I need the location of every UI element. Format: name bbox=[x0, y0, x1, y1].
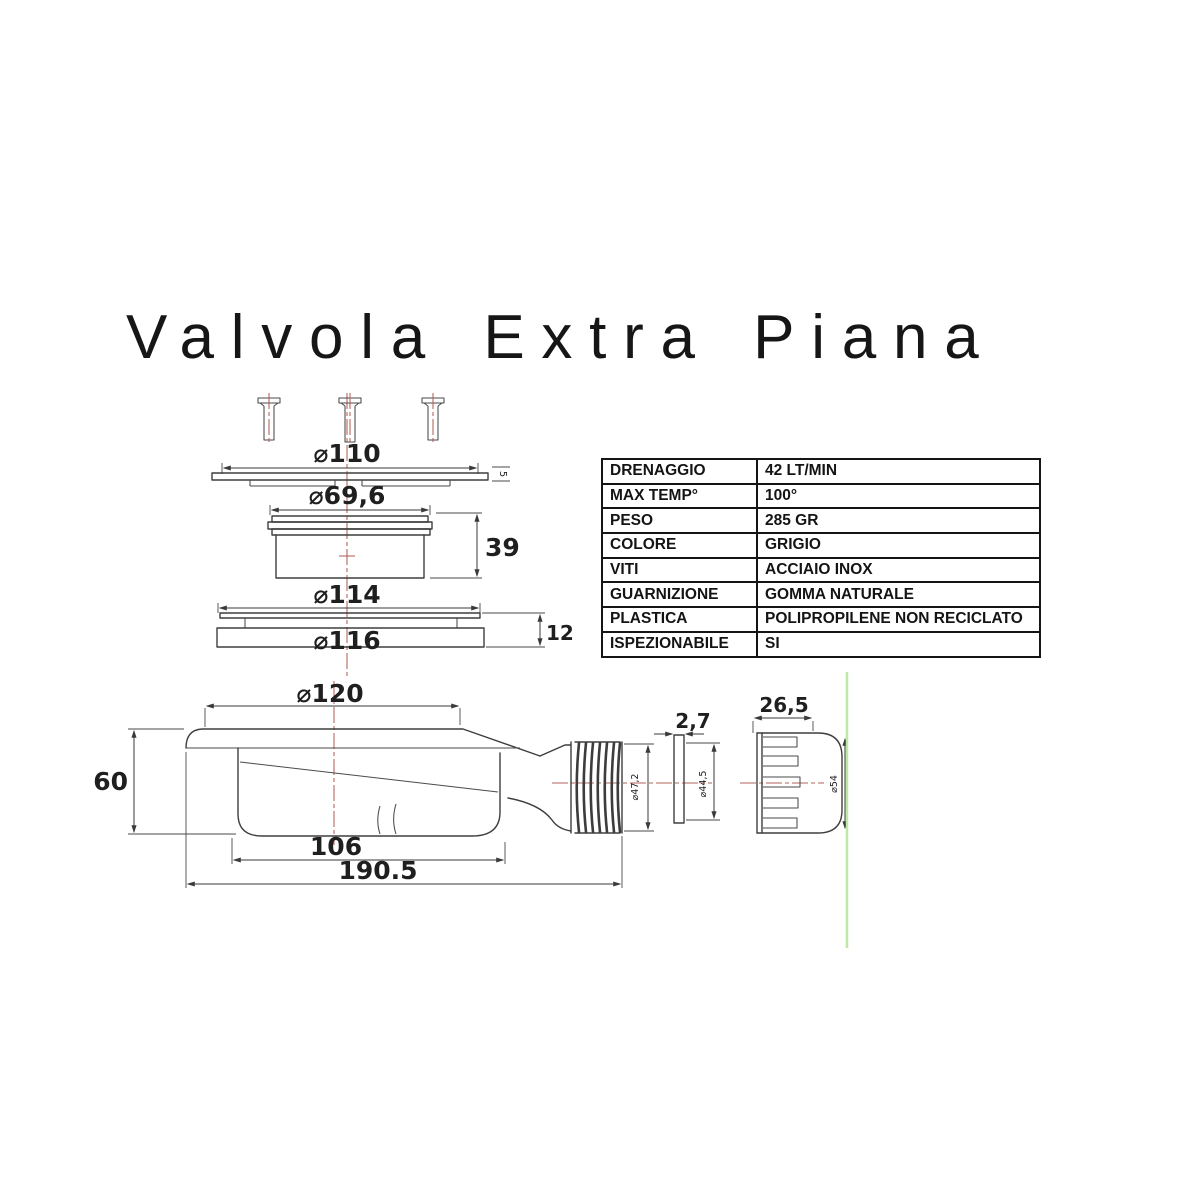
spec-row: GUARNIZIONE GOMMA NATURALE bbox=[602, 582, 1040, 607]
dim-flange-bottom-label: ⌀116 bbox=[313, 626, 380, 655]
dim-flange-height-label: 12 bbox=[546, 621, 574, 645]
spec-label-cell: VITI bbox=[602, 558, 757, 583]
page: Valvola Extra Piana bbox=[0, 0, 1200, 1200]
spec-value-cell: 42 LT/MIN bbox=[757, 459, 1040, 484]
spec-table: DRENAGGIO 42 LT/MIN MAX TEMP° 100° PESO … bbox=[601, 458, 1041, 658]
dim-insert-diameter-label: ⌀69,6 bbox=[309, 481, 386, 510]
dim-flange-height-ext bbox=[482, 613, 545, 647]
dim-body-height-ext bbox=[128, 729, 236, 834]
dim-cover-diameter-label: ⌀110 bbox=[313, 439, 380, 468]
spec-label-cell: COLORE bbox=[602, 533, 757, 558]
spec-row: PLASTICA POLIPROPILENE NON RECICLATO bbox=[602, 607, 1040, 632]
spec-label-cell: ISPEZIONABILE bbox=[602, 632, 757, 657]
dim-cover-thickness-label: 5 bbox=[497, 471, 508, 477]
spec-label-cell: GUARNIZIONE bbox=[602, 582, 757, 607]
dim-total-length-label: 190.5 bbox=[338, 856, 417, 885]
spec-label-cell: PESO bbox=[602, 508, 757, 533]
spec-row: COLORE GRIGIO bbox=[602, 533, 1040, 558]
spec-label-cell: DRENAGGIO bbox=[602, 459, 757, 484]
valve-insert bbox=[268, 516, 432, 578]
gasket bbox=[674, 735, 684, 823]
spec-label-cell: PLASTICA bbox=[602, 607, 757, 632]
spec-value-cell: 285 GR bbox=[757, 508, 1040, 533]
spec-value-cell: GRIGIO bbox=[757, 533, 1040, 558]
spec-value-cell: ACCIAIO INOX bbox=[757, 558, 1040, 583]
dim-insert-height-label: 39 bbox=[485, 533, 520, 562]
spec-value-cell: 100° bbox=[757, 484, 1040, 509]
dim-body-diameter-label: ⌀120 bbox=[296, 679, 363, 708]
spec-value-cell: SI bbox=[757, 632, 1040, 657]
spec-row: DRENAGGIO 42 LT/MIN bbox=[602, 459, 1040, 484]
dim-nut-length-label: 26,5 bbox=[759, 693, 808, 717]
dim-nut-length-ext bbox=[753, 721, 813, 733]
dim-gasket-diameter-label: ⌀44,5 bbox=[698, 771, 709, 798]
spec-label-cell: MAX TEMP° bbox=[602, 484, 757, 509]
dim-gasket-thickness-label: 2,7 bbox=[675, 709, 710, 733]
spec-row: VITI ACCIAIO INOX bbox=[602, 558, 1040, 583]
dim-insert-height-ext bbox=[430, 513, 482, 578]
spec-row: PESO 285 GR bbox=[602, 508, 1040, 533]
spec-value-cell: POLIPROPILENE NON RECICLATO bbox=[757, 607, 1040, 632]
dim-flange-top-label: ⌀114 bbox=[313, 580, 380, 609]
dim-nut-diameter-label: ⌀54 bbox=[829, 775, 840, 793]
screw-left bbox=[258, 393, 280, 445]
dim-body-height-label: 60 bbox=[93, 767, 128, 796]
exploded-view-drawing: ⌀110 5 ⌀69,6 39 bbox=[212, 393, 574, 676]
dim-outlet-diameter-label: ⌀47,2 bbox=[630, 774, 641, 801]
outlet-thread bbox=[575, 742, 622, 833]
spec-row: ISPEZIONABILE SI bbox=[602, 632, 1040, 657]
spec-row: MAX TEMP° 100° bbox=[602, 484, 1040, 509]
valve-body bbox=[186, 729, 571, 836]
side-view-drawing: ⌀120 bbox=[93, 679, 845, 888]
screw-right bbox=[422, 393, 444, 445]
spec-value-cell: GOMMA NATURALE bbox=[757, 582, 1040, 607]
dim-body-diameter-ext bbox=[205, 708, 460, 727]
